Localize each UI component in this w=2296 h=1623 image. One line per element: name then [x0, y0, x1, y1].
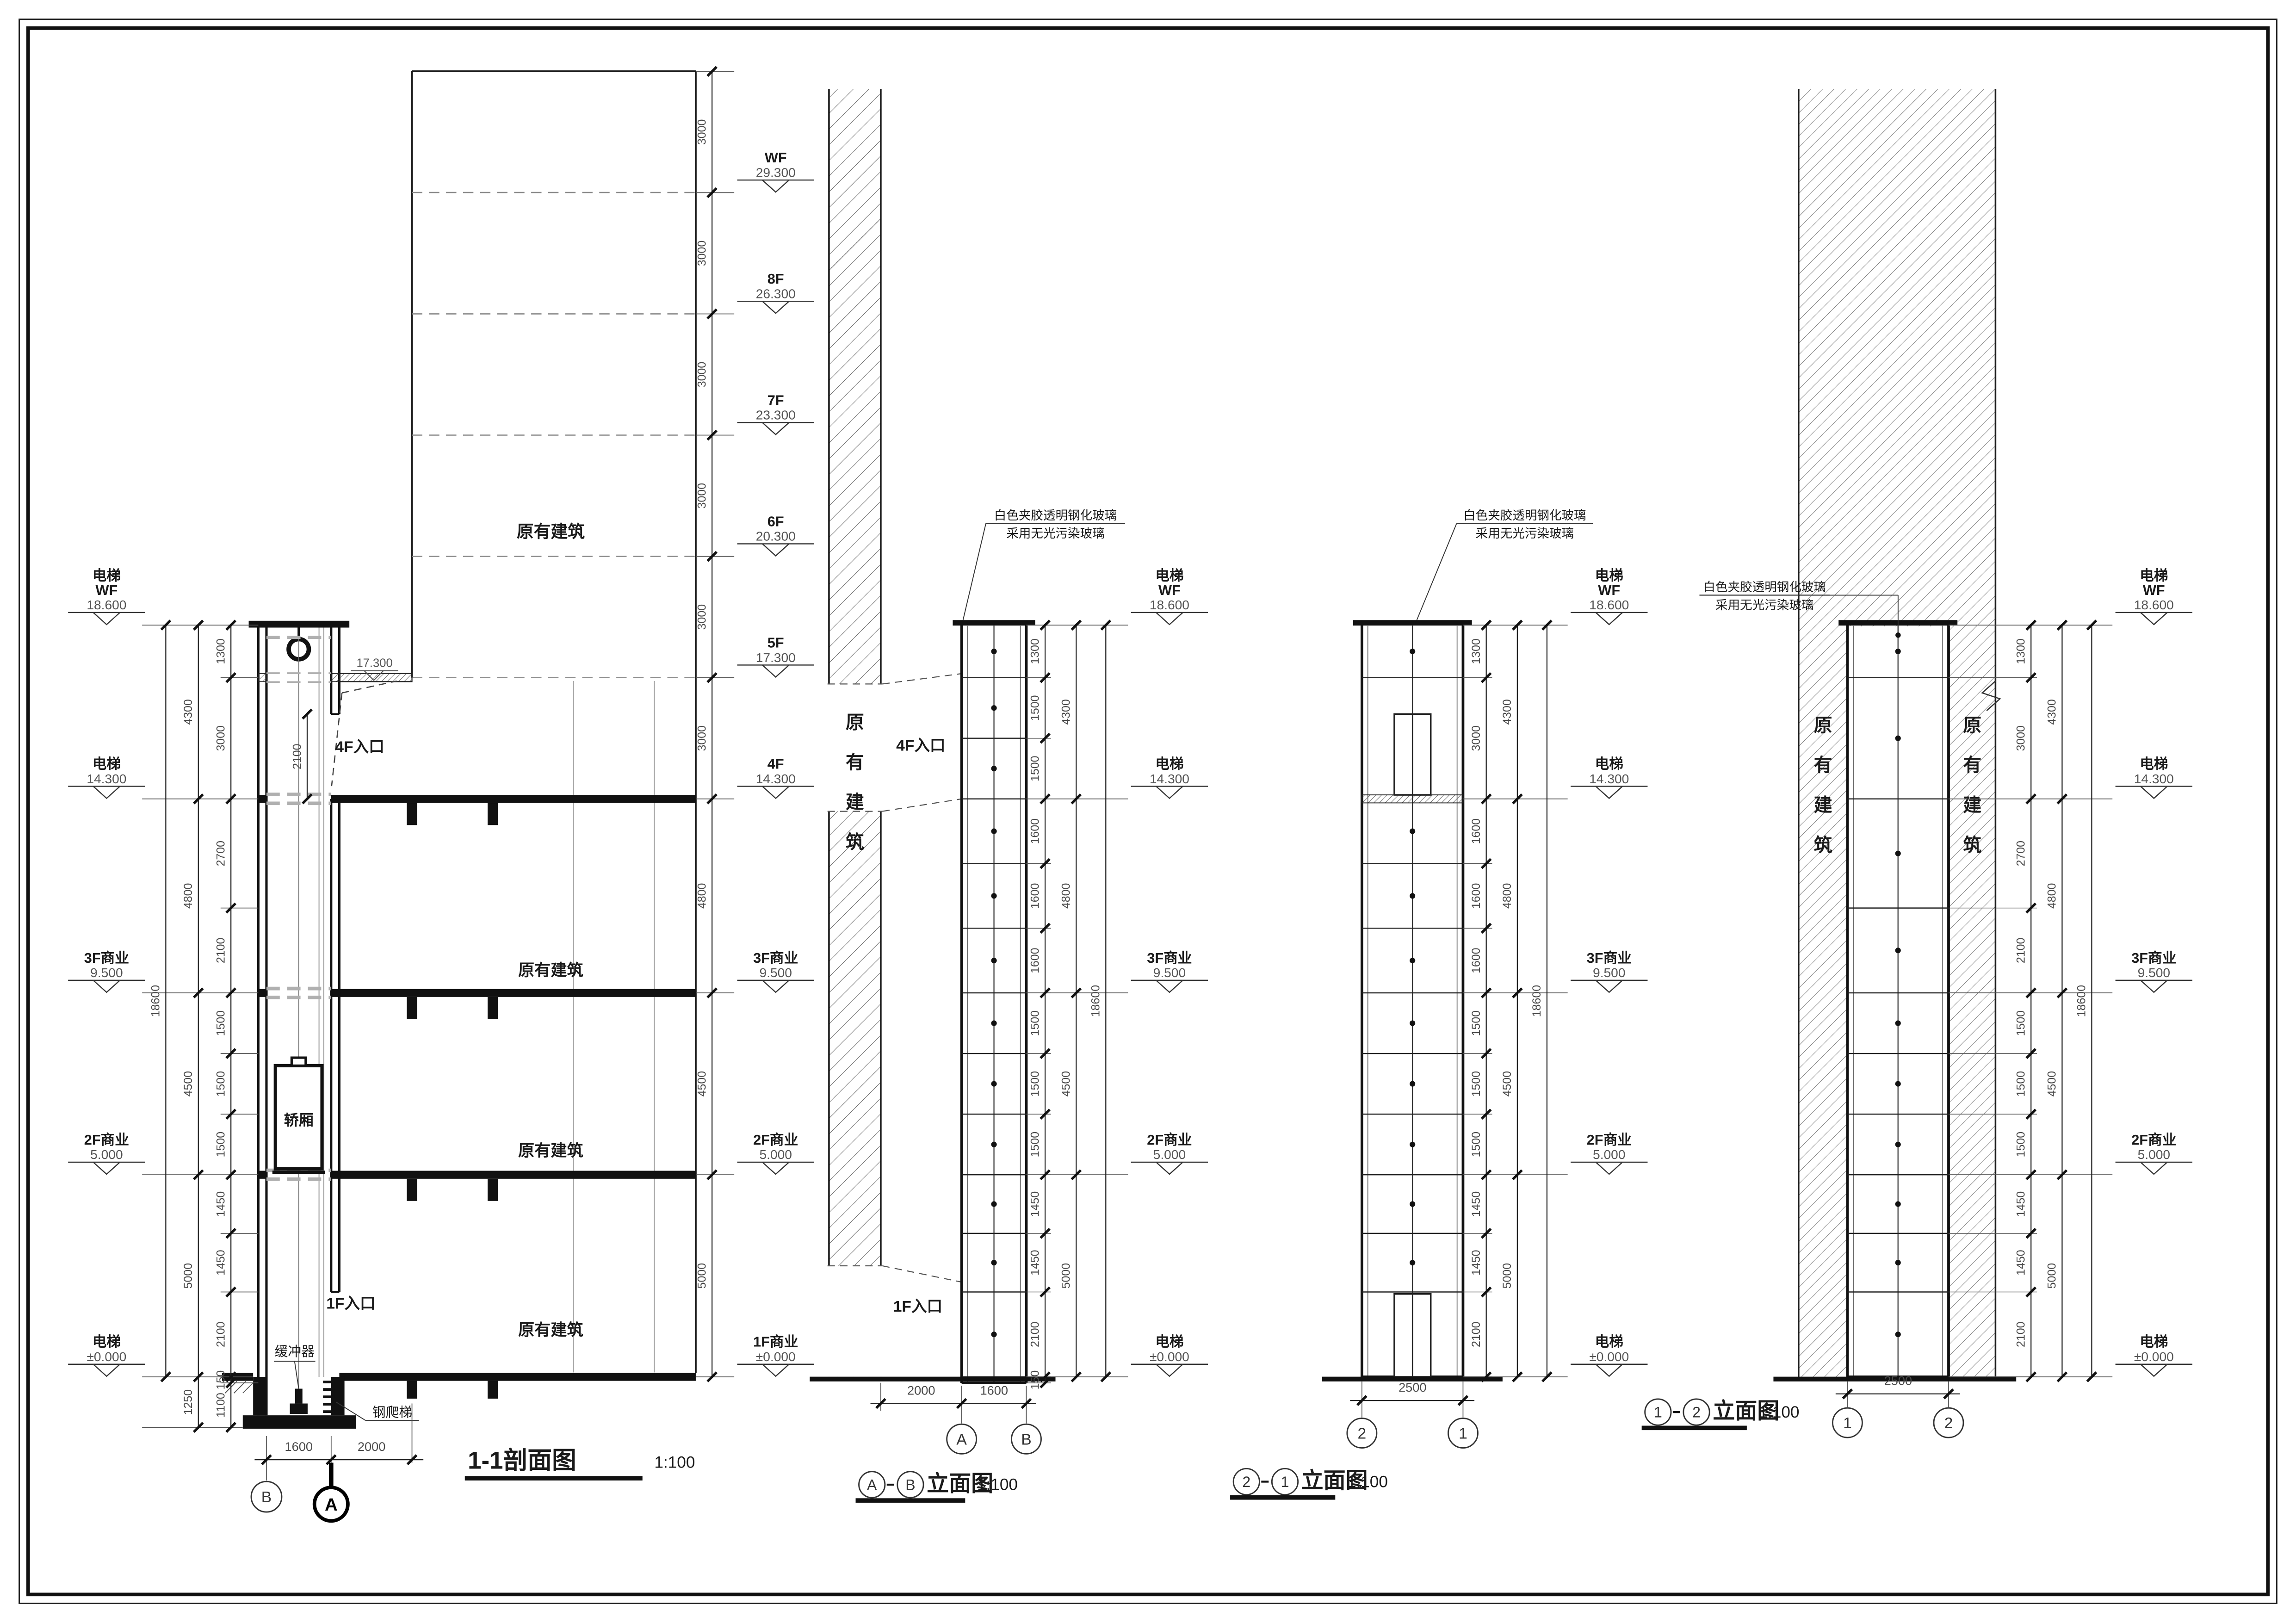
entry-1f-label: 1F入口 — [326, 1295, 375, 1313]
dim-value: 4300 — [182, 699, 195, 725]
dim-value: 1500 — [214, 1071, 227, 1096]
grid-bubble-label: B — [261, 1489, 272, 1506]
dim-value: 1250 — [182, 1389, 195, 1415]
dim-value: 18600 — [1089, 985, 1102, 1017]
dim-value: 1500 — [1470, 1010, 1483, 1036]
dim-value: 5000 — [695, 1263, 708, 1288]
dim-value: 5000 — [1060, 1263, 1073, 1288]
title-underline — [856, 1498, 965, 1503]
level-value: 20.300 — [756, 529, 796, 544]
roof-slab-17300 — [339, 674, 412, 682]
glass-fixing-dot — [1410, 958, 1415, 963]
dim-value: 3000 — [2014, 725, 2027, 751]
drawing-scale: 1:100 — [1758, 1403, 1799, 1421]
grid-bubble-label: A — [325, 1495, 338, 1515]
existing-building-vertical: 原 — [1814, 715, 1832, 736]
level-name: WF — [1598, 582, 1620, 598]
existing-building-vertical: 原 — [1963, 715, 1981, 736]
buffer — [295, 1389, 303, 1404]
existing-building-label: 原有建筑 — [518, 961, 583, 979]
dim-value: 1450 — [1028, 1191, 1041, 1217]
level-name: 2F商业 — [1587, 1132, 1632, 1148]
dim-value: 1500 — [214, 1010, 227, 1036]
level-name: 电梯 — [1155, 567, 1183, 583]
level-value: 18.600 — [87, 598, 126, 612]
glass-fixing-dot — [1410, 1201, 1415, 1207]
glass-fixing-dot — [991, 829, 996, 834]
dim-value: 1500 — [1028, 695, 1041, 720]
glass-fixing-dot — [991, 1081, 996, 1087]
glass-note-line2: 采用无光污染玻璃 — [1476, 527, 1574, 540]
rect — [258, 1171, 266, 1179]
floor-slab — [331, 795, 696, 803]
entry-4f-label: 4F入口 — [335, 739, 384, 756]
dim-value: 3000 — [695, 119, 708, 145]
dim-value: 4300 — [1060, 699, 1073, 725]
level-value: 5.000 — [1593, 1147, 1625, 1162]
grid-bubble-label: 1 — [1459, 1425, 1467, 1443]
level-value: ±0.000 — [1589, 1350, 1629, 1364]
level-value: 18.600 — [2134, 598, 2174, 612]
glass-fixing-dot — [1895, 1260, 1901, 1265]
dim-value: 1450 — [1470, 1191, 1483, 1217]
level-name: 电梯 — [2140, 567, 2168, 583]
ground-slab — [339, 1373, 696, 1381]
dim-value: 1600 — [1028, 883, 1041, 909]
dim-value: 18600 — [1530, 985, 1543, 1017]
existing-building-label: 原有建筑 — [517, 522, 585, 541]
blueprint-canvas: 轿厢17.30021004F入口1F入口缓冲器钢爬梯原有建筑原有建筑原有建筑原有… — [0, 0, 2296, 1623]
level-value: ±0.000 — [756, 1350, 796, 1364]
level-value: 17.300 — [356, 657, 392, 670]
dim-value: 4500 — [1060, 1071, 1073, 1096]
leader-dot — [1895, 632, 1901, 638]
grid-bubble-label: 2 — [1242, 1474, 1250, 1490]
grid-bubble-label: B — [905, 1476, 915, 1493]
dim-value: 1600 — [1470, 818, 1483, 844]
buffer-label: 缓冲器 — [275, 1344, 315, 1359]
dim-value: 3000 — [695, 483, 708, 508]
tower-cap — [953, 620, 1035, 626]
dim-value: 3000 — [695, 604, 708, 630]
dim-value: 4500 — [1501, 1071, 1514, 1096]
level-name: 电梯 — [1595, 1334, 1623, 1350]
dim-value: 1300 — [2014, 638, 2027, 664]
dim-value: 1500 — [1028, 1071, 1041, 1096]
dim-value: 4500 — [182, 1071, 195, 1096]
level-value: ±0.000 — [1150, 1350, 1189, 1364]
glass-fixing-dot — [1895, 1201, 1901, 1207]
car-hitch — [291, 1058, 305, 1065]
level-name: 4F — [767, 756, 784, 772]
rect — [488, 1381, 498, 1399]
glass-fixing-dot — [1410, 649, 1415, 654]
tower-cap — [1353, 620, 1472, 626]
dim-value: 150 — [214, 1370, 227, 1390]
rect — [331, 674, 340, 682]
entry-notch — [827, 1266, 882, 1377]
grid-bubble-label: A — [867, 1476, 877, 1493]
level-name: 7F — [767, 392, 784, 408]
existing-building-vertical: 原 — [846, 712, 864, 732]
level-name: 1F商业 — [753, 1334, 798, 1350]
glass-fixing-dot — [1895, 1142, 1901, 1147]
level-value: 26.300 — [756, 287, 796, 301]
drawing-sheet: 轿厢17.30021004F入口1F入口缓冲器钢爬梯原有建筑原有建筑原有建筑原有… — [0, 0, 2296, 1623]
dim-value: 4500 — [695, 1071, 708, 1096]
existing-building-vertical: 筑 — [1963, 835, 1981, 855]
glass-fixing-dot — [1410, 1142, 1415, 1147]
rect — [488, 1179, 498, 1201]
glass-fixing-dot — [991, 1021, 996, 1026]
shaft-cap — [249, 621, 350, 628]
existing-building-vertical: 筑 — [846, 832, 864, 853]
glass-fixing-dot — [991, 893, 996, 898]
level-value: ±0.000 — [87, 1350, 126, 1364]
glass-note-line2: 采用无光污染玻璃 — [1006, 527, 1104, 540]
level-name: 电梯 — [2140, 1334, 2168, 1350]
level-name: 电梯 — [1595, 756, 1623, 772]
level-name: 3F商业 — [1147, 950, 1192, 966]
dim-value: 4500 — [2046, 1071, 2059, 1096]
existing-building-vertical: 建 — [846, 792, 864, 812]
level-name: 3F商业 — [84, 950, 129, 966]
glass-fixing-dot — [1895, 649, 1901, 654]
level-value: 14.300 — [2134, 772, 2174, 786]
level-name: WF — [96, 582, 118, 598]
dim-value: 5000 — [1501, 1263, 1514, 1288]
glass-fixing-dot — [991, 705, 996, 711]
drawing-scale: 1:100 — [977, 1476, 1018, 1494]
dim-value: 2100 — [2014, 938, 2027, 963]
dim-value: 1300 — [214, 638, 227, 664]
level-name: 电梯 — [1595, 567, 1623, 583]
level-value: 14.300 — [1589, 772, 1629, 786]
dim-value: 1300 — [1470, 638, 1483, 664]
ladder-label: 钢爬梯 — [372, 1405, 412, 1420]
grid-bubble-label: 2 — [1944, 1415, 1953, 1432]
glass-fixing-dot — [1895, 1332, 1901, 1337]
existing-building-vertical: 有 — [1814, 755, 1832, 775]
glass-fixing-dot — [1410, 1081, 1415, 1087]
level-name: 2F商业 — [2131, 1132, 2176, 1148]
level-name: 6F — [767, 513, 784, 529]
rect — [258, 989, 266, 997]
level-name: 电梯 — [2140, 756, 2168, 772]
dim-value: 1500 — [1028, 1132, 1041, 1157]
level-name: WF — [765, 149, 787, 166]
dim-value: 5000 — [2046, 1263, 2059, 1288]
dim-value: 1600 — [1470, 948, 1483, 973]
rect — [407, 1179, 417, 1201]
dim-value: 3000 — [695, 362, 708, 387]
car-label: 轿厢 — [284, 1112, 314, 1128]
existing-building-vertical: 有 — [1963, 755, 1981, 775]
grid-bubble-label: 2 — [1358, 1425, 1367, 1443]
level-value: 14.300 — [756, 772, 796, 786]
dim-value: 4800 — [695, 883, 708, 909]
level-name: 3F商业 — [2131, 950, 2176, 966]
level-value: 17.300 — [756, 650, 796, 665]
dim-value: 4300 — [2046, 699, 2059, 725]
glass-fixing-dot — [1410, 1021, 1415, 1026]
dim-value: 4800 — [1060, 883, 1073, 909]
dim-value: 2000 — [358, 1439, 385, 1454]
dim-value: 1450 — [2014, 1191, 2027, 1217]
dim-value: 2700 — [2014, 841, 2027, 866]
glass-fixing-dot — [1410, 829, 1415, 834]
dim-value: 1600 — [285, 1439, 312, 1454]
glass-fixing-dot — [991, 1142, 996, 1147]
glass-fixing-dot — [1895, 851, 1901, 856]
existing-building-vertical: 建 — [1814, 795, 1832, 816]
dim-value: 1500 — [2014, 1071, 2027, 1096]
rect — [488, 997, 498, 1019]
grid-bubble-label: 1 — [1281, 1474, 1289, 1490]
existing-building-vertical: 有 — [846, 752, 864, 773]
dim-value: 2700 — [214, 841, 227, 866]
grid-bubble-label: 1 — [1843, 1415, 1852, 1432]
level-name: 电梯 — [93, 567, 121, 583]
dim-value: 1100 — [214, 1393, 227, 1418]
level-value: 9.500 — [760, 966, 792, 980]
level-value: 9.500 — [90, 966, 123, 980]
title-underline — [465, 1476, 643, 1481]
glass-fixing-dot — [1895, 736, 1901, 741]
level-value: 14.300 — [1150, 772, 1189, 786]
dim-value: 1450 — [1470, 1250, 1483, 1275]
level-name: 8F — [767, 271, 784, 287]
glass-fixing-dot — [1895, 948, 1901, 953]
glass-fixing-dot — [1410, 1260, 1415, 1265]
floor-slab — [331, 1171, 696, 1179]
dim-value: 2500 — [1399, 1380, 1426, 1394]
grid-bubble-label: A — [956, 1431, 967, 1448]
level-name: 3F商业 — [1587, 950, 1632, 966]
level-value: 14.300 — [87, 772, 126, 786]
dim-value: 18600 — [149, 985, 162, 1017]
dim-value: 2000 — [907, 1383, 935, 1397]
dim-value: 2100 — [1028, 1321, 1041, 1347]
dim-value: 3000 — [695, 725, 708, 751]
rect — [488, 803, 498, 825]
dim-value: 18600 — [2075, 985, 2088, 1017]
entry-1f-label: 1F入口 — [893, 1298, 942, 1315]
glass-fixing-dot — [1410, 893, 1415, 898]
level-value: 5.000 — [1153, 1147, 1186, 1162]
glass-fixing-dot — [1895, 1021, 1901, 1026]
level-name: 5F — [767, 634, 784, 650]
drawing-scale: 1:100 — [1347, 1473, 1388, 1491]
glass-fixing-dot — [991, 766, 996, 771]
grid-bubble-label: 1 — [1654, 1404, 1662, 1421]
glass-note-line2: 采用无光污染玻璃 — [1715, 598, 1813, 612]
dim-value: 1450 — [214, 1250, 227, 1275]
dim-value: 3000 — [214, 725, 227, 751]
level-name: 电梯 — [1155, 1334, 1183, 1350]
rect — [407, 1381, 417, 1399]
title-underline — [1230, 1495, 1335, 1500]
dim-value: 1500 — [2014, 1132, 2027, 1157]
dim-value: 1450 — [2014, 1250, 2027, 1275]
dim-value: 1300 — [1028, 638, 1041, 664]
drawing-scale: 1:100 — [654, 1454, 695, 1472]
glass-fixing-dot — [991, 1201, 996, 1207]
glass-note-line1: 白色夹胶透明钢化玻璃 — [1703, 580, 1826, 594]
level-value: 29.300 — [756, 165, 796, 180]
dim-value: 2100 — [214, 1321, 227, 1347]
pit-floor — [243, 1415, 356, 1429]
dim-value: 4800 — [1501, 883, 1514, 909]
dim-value: 2100 — [214, 938, 227, 963]
level-name: 电梯 — [93, 756, 121, 772]
glass-note-line1: 白色夹胶透明钢化玻璃 — [994, 508, 1117, 522]
dim-value: 2100 — [1470, 1321, 1483, 1347]
dim-value: 1600 — [1028, 948, 1041, 973]
dim-value: 1600 — [1470, 883, 1483, 909]
rect — [258, 674, 266, 682]
level-value: 9.500 — [1153, 966, 1186, 980]
drawing-title: 1-1剖面图 — [468, 1447, 576, 1474]
glass-note-line1: 白色夹胶透明钢化玻璃 — [1463, 508, 1586, 522]
level-value: 5.000 — [760, 1147, 792, 1162]
buffer-base — [290, 1404, 308, 1414]
level-value: 23.300 — [756, 408, 796, 422]
level-name: 电梯 — [1155, 756, 1183, 772]
dim-value: 4800 — [182, 883, 195, 909]
floor-slab — [331, 989, 696, 997]
dim-value: 150 — [1028, 1370, 1041, 1390]
title-underline — [1642, 1426, 1747, 1431]
dim-value: 1500 — [1028, 756, 1041, 781]
dim-value: 4800 — [2046, 883, 2059, 909]
dim-value: 2500 — [1884, 1374, 1912, 1388]
dim-value: 2100 — [291, 743, 304, 769]
level-name: 2F商业 — [753, 1132, 798, 1148]
glass-fixing-dot — [1895, 1081, 1901, 1087]
level-name: 2F商业 — [1147, 1132, 1192, 1148]
level-value: 9.500 — [2138, 966, 2170, 980]
level-name: 电梯 — [93, 1334, 121, 1350]
dim-value: 1450 — [214, 1191, 227, 1217]
dim-value: 1500 — [1470, 1071, 1483, 1096]
dim-value: 1500 — [1470, 1132, 1483, 1157]
dim-value: 5000 — [182, 1263, 195, 1288]
rect — [407, 803, 417, 825]
dim-value: 3000 — [695, 241, 708, 266]
dim-value: 1600 — [980, 1383, 1008, 1397]
slab-hatch — [1362, 795, 1463, 803]
glass-fixing-dot — [991, 958, 996, 963]
existing-building-vertical: 筑 — [1814, 835, 1832, 855]
existing-building-label: 原有建筑 — [518, 1321, 583, 1339]
level-value: 9.500 — [1593, 966, 1625, 980]
level-value: 5.000 — [90, 1147, 123, 1162]
level-name: WF — [1158, 582, 1181, 598]
grid-bubble-label: B — [1021, 1431, 1031, 1448]
entry-4f-label: 4F入口 — [896, 737, 945, 754]
existing-building-label: 原有建筑 — [518, 1142, 583, 1160]
glass-fixing-dot — [991, 649, 996, 654]
level-name: WF — [2143, 582, 2165, 598]
existing-building-vertical: 建 — [1963, 795, 1981, 816]
level-value: 5.000 — [2138, 1147, 2170, 1162]
dim-value: 1450 — [1028, 1250, 1041, 1275]
rect — [258, 795, 266, 803]
dim-value: 1500 — [1028, 1010, 1041, 1036]
rect — [407, 997, 417, 1019]
level-value: 18.600 — [1150, 598, 1189, 612]
level-value: 18.600 — [1589, 598, 1629, 612]
dim-value: 1600 — [1028, 818, 1041, 844]
dim-value: 4300 — [1501, 699, 1514, 725]
dim-value: 1500 — [214, 1132, 227, 1157]
grid-bubble-label: 2 — [1692, 1404, 1701, 1421]
glass-fixing-dot — [991, 1332, 996, 1337]
dim-value: 2100 — [2014, 1321, 2027, 1347]
dim-value: 1500 — [2014, 1010, 2027, 1036]
level-value: ±0.000 — [2134, 1350, 2174, 1364]
level-name: 2F商业 — [84, 1132, 129, 1148]
glass-fixing-dot — [991, 1260, 996, 1265]
level-name: 3F商业 — [753, 950, 798, 966]
dim-value: 3000 — [1470, 725, 1483, 751]
